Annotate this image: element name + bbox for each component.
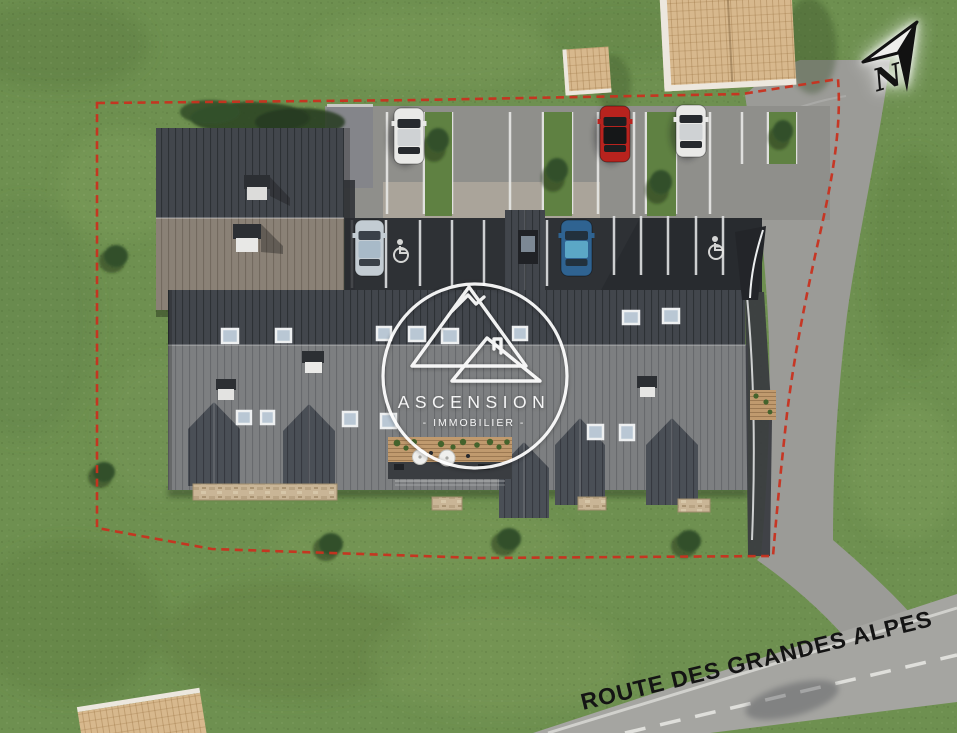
entry-wing-roof (505, 210, 545, 292)
silver-car (353, 220, 387, 276)
terrace (388, 437, 512, 485)
watermark-subtitle: - IMMOBILIER - (423, 417, 526, 429)
white-car (388, 108, 427, 167)
blue-car (559, 220, 595, 276)
watermark-title: ASCENSION (398, 392, 551, 412)
white-car (670, 105, 709, 160)
aerial-site-plan: ASCENSION - IMMOBILIER - ROUTE DES GRAND… (0, 0, 957, 733)
neighbor-building-large (660, 0, 839, 101)
red-car (594, 106, 633, 165)
top-left-wing-roof (156, 100, 350, 317)
chimney (244, 175, 270, 189)
chimney (233, 224, 261, 239)
site-plan-canvas: ASCENSION - IMMOBILIER - ROUTE DES GRAND… (0, 0, 957, 733)
east-wood-deck (750, 390, 776, 420)
